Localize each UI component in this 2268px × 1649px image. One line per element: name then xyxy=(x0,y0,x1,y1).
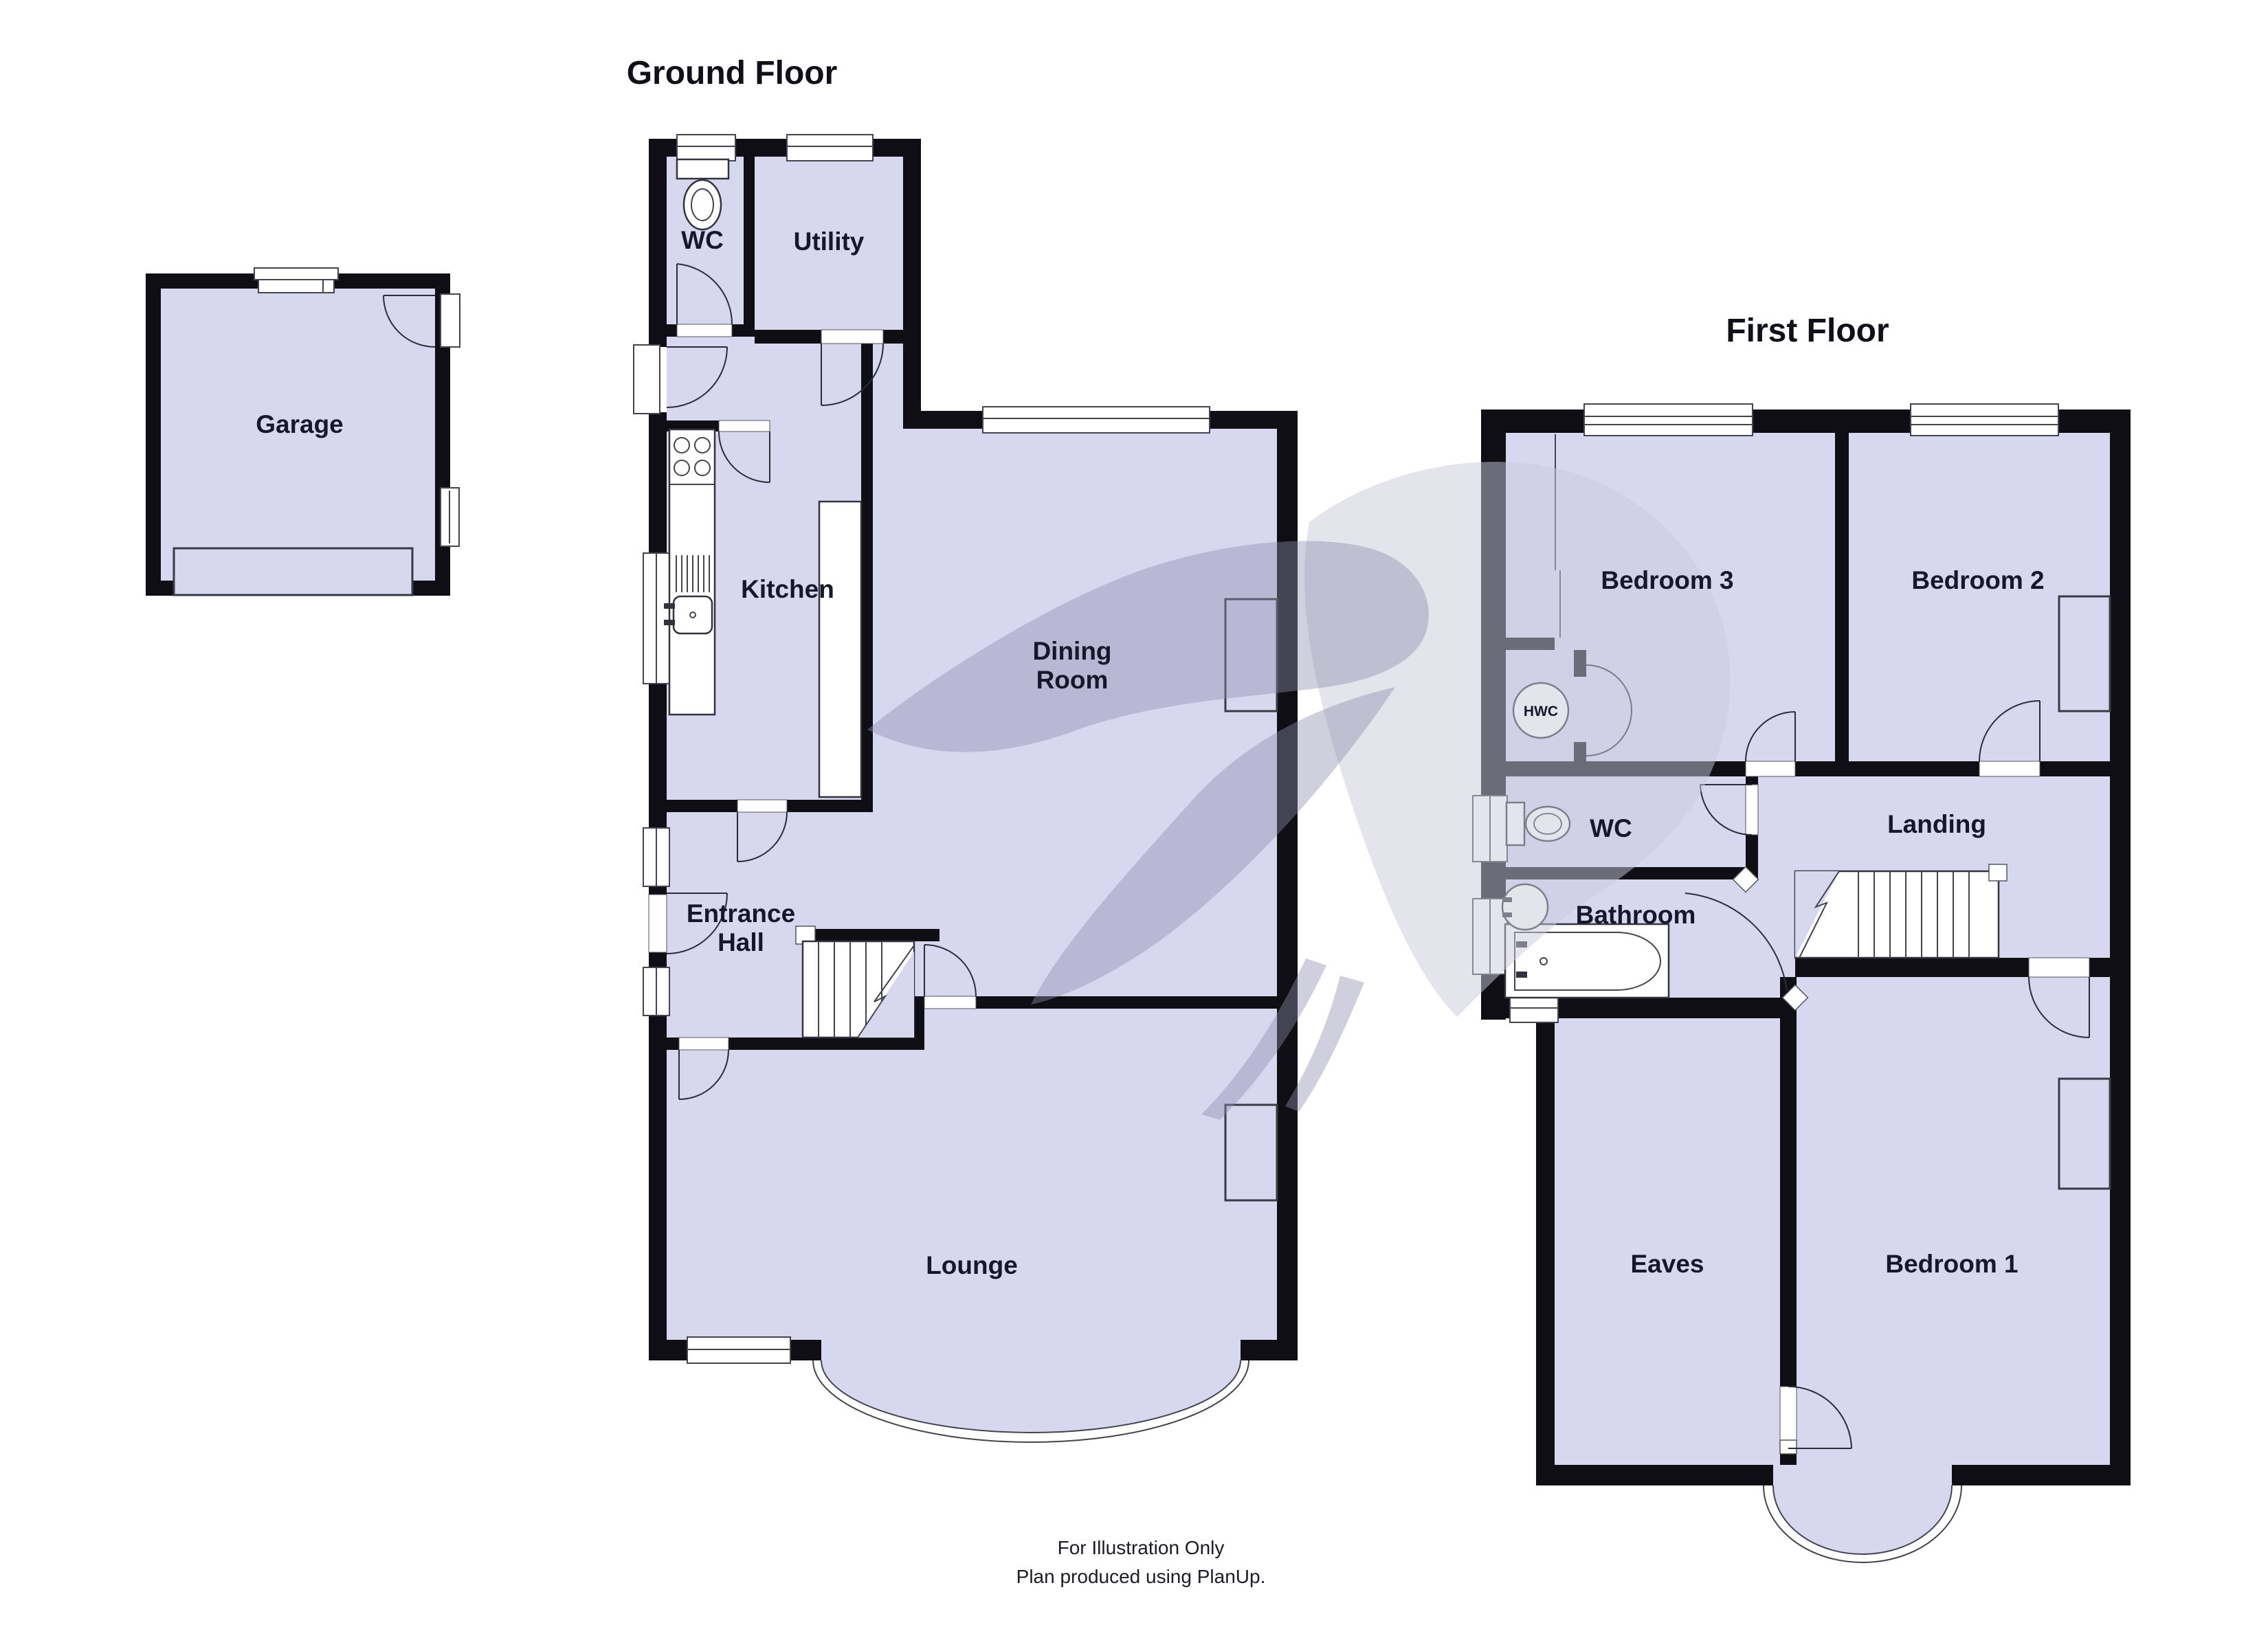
wc-first-door-threshold xyxy=(1746,785,1758,835)
wall-top-1 xyxy=(649,139,677,157)
wall-bottom-1 xyxy=(649,1340,687,1360)
label-dining-1: Dining xyxy=(1032,637,1111,665)
garage-window-top-sill xyxy=(254,268,338,280)
wall-left-6 xyxy=(649,1016,667,1340)
wall-left-4 xyxy=(649,886,667,895)
ff-wall-eaves-bed1-stub xyxy=(1780,1454,1797,1465)
ff-wall-eaves-left xyxy=(1536,1018,1555,1465)
ff-wall-bottom-1 xyxy=(1536,1465,1773,1485)
label-utility: Utility xyxy=(794,227,865,256)
room-bedroom1 xyxy=(1797,977,2110,1465)
kitchen-worktop-island xyxy=(819,502,861,797)
wall-utility-bottom-1 xyxy=(755,330,821,344)
lounge-door-threshold xyxy=(679,1037,729,1050)
wall-utility-bottom-2 xyxy=(883,330,921,344)
label-hall-2: Hall xyxy=(718,928,764,956)
label-dining-2: Room xyxy=(1036,666,1109,694)
wall-left-5 xyxy=(649,952,667,969)
room-vestibule xyxy=(873,344,903,433)
sink-tap xyxy=(664,620,675,625)
label-kitchen: Kitchen xyxy=(741,575,834,603)
sink-tap xyxy=(664,603,675,609)
bath-tap xyxy=(1516,972,1527,978)
ff-wall-eaves-bed1 xyxy=(1780,977,1797,1387)
footer-line-2: Plan produced using PlanUp. xyxy=(1016,1566,1266,1587)
ground-floor-plan xyxy=(634,135,1298,1442)
footer-line-1: For Illustration Only xyxy=(1058,1537,1225,1558)
room-eaves xyxy=(1555,1018,1780,1465)
wall-dining-top-1 xyxy=(921,411,983,429)
wall-stairs-top xyxy=(815,929,940,941)
label-bedroom3: Bedroom 3 xyxy=(1601,566,1733,594)
label-wc-first: WC xyxy=(1590,814,1632,842)
wall-left-1 xyxy=(649,139,667,347)
label-eaves: Eaves xyxy=(1631,1250,1704,1278)
wall-utility-right xyxy=(903,139,921,429)
wall-wc-bottom-2 xyxy=(732,324,755,337)
utility-window xyxy=(787,135,873,161)
label-bathroom: Bathroom xyxy=(1576,901,1696,929)
wall-left-2 xyxy=(649,412,667,553)
bedroom3-door-threshold xyxy=(1746,761,1795,776)
ground-floor-title: Ground Floor xyxy=(627,55,838,91)
lounge-bay-fill xyxy=(821,1360,1241,1433)
wall-hall-top-1 xyxy=(667,800,737,812)
label-landing: Landing xyxy=(1887,810,1986,838)
label-wc-ground: WC xyxy=(681,226,724,254)
ff-wall-wc-right-1 xyxy=(1746,776,1758,785)
first-floor-title: First Floor xyxy=(1726,313,1889,349)
stairs-first-jamb xyxy=(1989,864,2007,881)
bedroom2-window xyxy=(1911,404,2058,436)
ff-wall-bottom-2 xyxy=(1952,1465,2127,1485)
ff-wall-bed3-bottom-2 xyxy=(1795,761,1850,776)
bedroom3-window xyxy=(1584,404,1753,436)
room-lounge xyxy=(667,1050,1277,1340)
ff-wall-bed1-top-1 xyxy=(1795,958,2029,977)
label-garage: Garage xyxy=(256,410,344,438)
wall-hall-lounge-1 xyxy=(649,1037,679,1050)
wall-left-3 xyxy=(649,684,667,828)
label-bedroom1: Bedroom 1 xyxy=(1885,1250,2018,1278)
ff-wall-bed2-bottom-1 xyxy=(1849,761,1979,776)
wall-bottom-2 xyxy=(790,1340,821,1360)
wall-dining-lounge-2 xyxy=(976,996,1277,1009)
wc-window xyxy=(677,135,735,161)
label-bedroom2: Bedroom 2 xyxy=(1911,566,2044,594)
toilet-bowl-ground xyxy=(684,180,721,229)
dining-door-threshold xyxy=(924,996,976,1009)
sink-drainer xyxy=(676,555,709,592)
floorplan-canvas: Ground Floor First Floor Garage WC Utili… xyxy=(0,0,2268,1649)
room-lounge-bay-gap xyxy=(821,1340,1241,1360)
lounge-chimney-breast xyxy=(1225,1105,1277,1200)
hall-door-threshold xyxy=(737,800,787,812)
ff-wall-top-2 xyxy=(1753,410,1911,433)
wall-hall-lounge-2 xyxy=(729,1037,924,1050)
dining-window xyxy=(983,407,1210,433)
kitchen-sink xyxy=(674,596,712,633)
utility-door-threshold xyxy=(821,330,883,344)
kitchen-door-threshold xyxy=(719,420,770,431)
ff-wall-bed2-bottom-2 xyxy=(2040,761,2127,776)
bedroom1-bay-fill xyxy=(1773,1485,1952,1554)
eaves-door-jamb xyxy=(1780,1440,1797,1454)
ff-wall-bath-bottom-1 xyxy=(1481,998,1510,1018)
ff-wall-bed3-bed2 xyxy=(1835,426,1849,776)
garage-wall-left xyxy=(146,273,161,596)
eaves-door-threshold xyxy=(1780,1387,1797,1448)
wall-wc-utility xyxy=(744,157,755,324)
bedroom1-door-threshold xyxy=(2029,958,2089,977)
garage-vehicle-door xyxy=(174,548,412,595)
room-bedroom1-bay-gap xyxy=(1773,1465,1952,1485)
back-door-frame xyxy=(634,345,660,414)
floorplan-page: Ground Floor First Floor Garage WC Utili… xyxy=(0,0,2268,1649)
toilet-cistern-ground xyxy=(677,159,729,179)
label-hwc: HWC xyxy=(1524,704,1558,719)
front-door-threshold xyxy=(649,895,667,952)
ff-wall-right xyxy=(2110,410,2131,1485)
label-hall-1: Entrance xyxy=(687,899,795,928)
bedroom1-wardrobe xyxy=(2059,1079,2110,1189)
wall-top-2 xyxy=(735,139,787,157)
ff-wall-bath-bottom-2 xyxy=(1558,998,1797,1018)
wall-bottom-3 xyxy=(1241,1340,1298,1360)
wc-door-threshold xyxy=(677,324,732,337)
wall-hall-top-2 xyxy=(787,800,873,812)
label-lounge: Lounge xyxy=(926,1251,1018,1279)
bedroom2-wardrobe xyxy=(2059,596,2110,711)
ff-wall-bed1-top-2 xyxy=(2089,958,2127,977)
garage-side-door-frame xyxy=(441,294,460,347)
wall-wc-bottom-1 xyxy=(667,324,677,337)
bedroom2-door-threshold xyxy=(1979,761,2040,776)
